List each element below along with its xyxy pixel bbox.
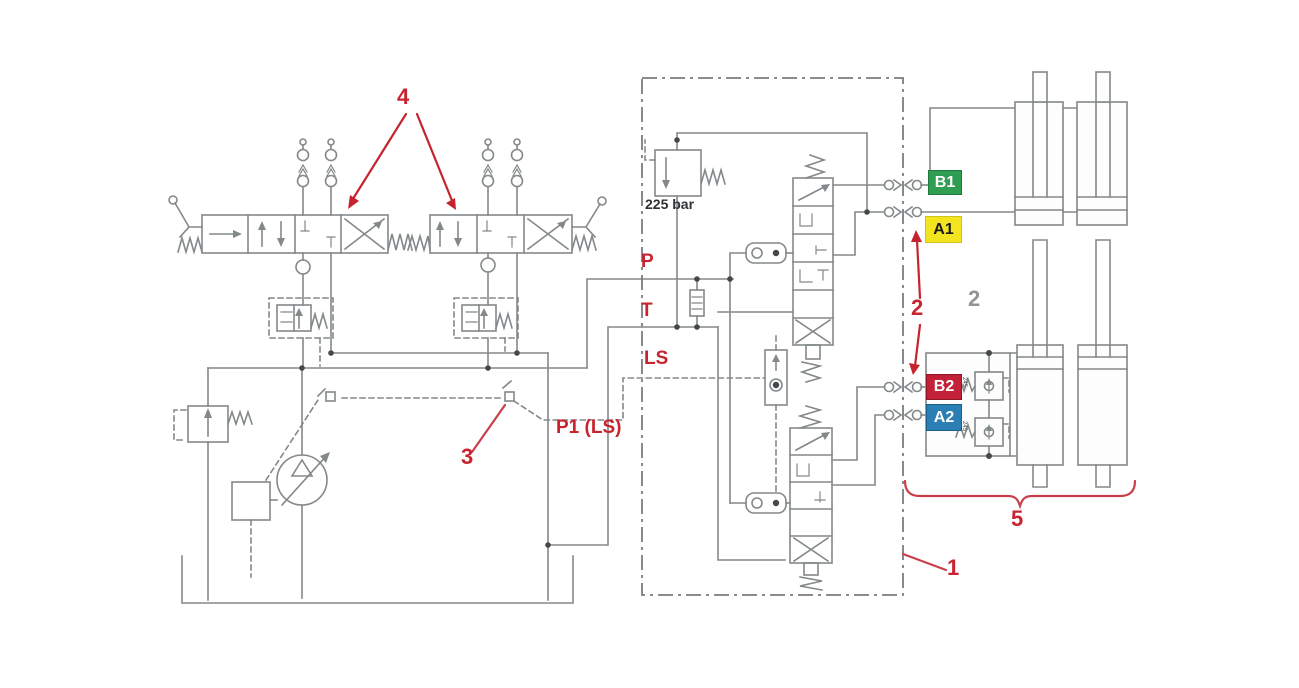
port-p1-ls-label: P1 (LS) bbox=[556, 418, 621, 437]
port-badge-b2: B2 bbox=[926, 374, 962, 400]
schematic-artwork bbox=[0, 0, 1299, 688]
shock-valve-setting-bottom: 245 bbox=[961, 421, 967, 431]
callout-1-valve-block: 1 bbox=[947, 557, 959, 579]
directional-control-valves bbox=[169, 139, 606, 368]
callout-3-ls-coupling: 3 bbox=[461, 446, 473, 468]
callout-2-gray: 2 bbox=[968, 288, 980, 310]
callout-4-control-valves: 4 bbox=[397, 86, 409, 108]
port-badge-b1: B1 bbox=[928, 170, 962, 195]
port-t-label: T bbox=[641, 301, 653, 320]
port-ls-label: LS bbox=[644, 349, 668, 368]
callout-2-couplings: 2 bbox=[911, 297, 923, 319]
pressure-setting-label: 225 bar bbox=[645, 196, 694, 212]
port-badge-a2: A2 bbox=[926, 404, 962, 431]
port-badge-a1: A1 bbox=[925, 216, 962, 243]
pilot-stacks bbox=[298, 139, 523, 215]
coupler-pair bbox=[885, 382, 927, 392]
coupler-pair bbox=[885, 180, 929, 190]
valve-block bbox=[642, 78, 903, 595]
hydraulic-schematic-page: 4 225 bar P T LS P1 (LS) 3 2 2 1 5 B1 A1… bbox=[0, 0, 1299, 688]
shock-valve-setting-top: 245 bbox=[961, 377, 967, 387]
coupler-pair bbox=[885, 410, 927, 420]
port-p-label: P bbox=[641, 252, 654, 271]
callout-5-cylinder-group: 5 bbox=[1011, 508, 1023, 530]
